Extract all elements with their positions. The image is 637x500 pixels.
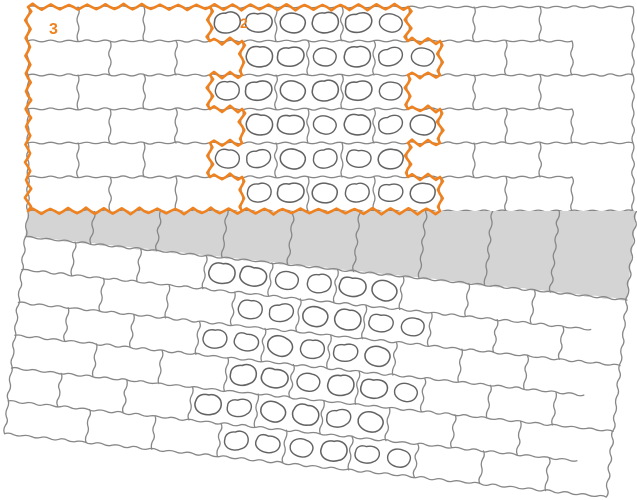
paving-tiles-graphic [0,0,637,500]
region-2-label: 2 [240,16,248,30]
paving-pattern-diagram: 3 2 [0,0,637,500]
region-3-label: 3 [49,22,58,38]
